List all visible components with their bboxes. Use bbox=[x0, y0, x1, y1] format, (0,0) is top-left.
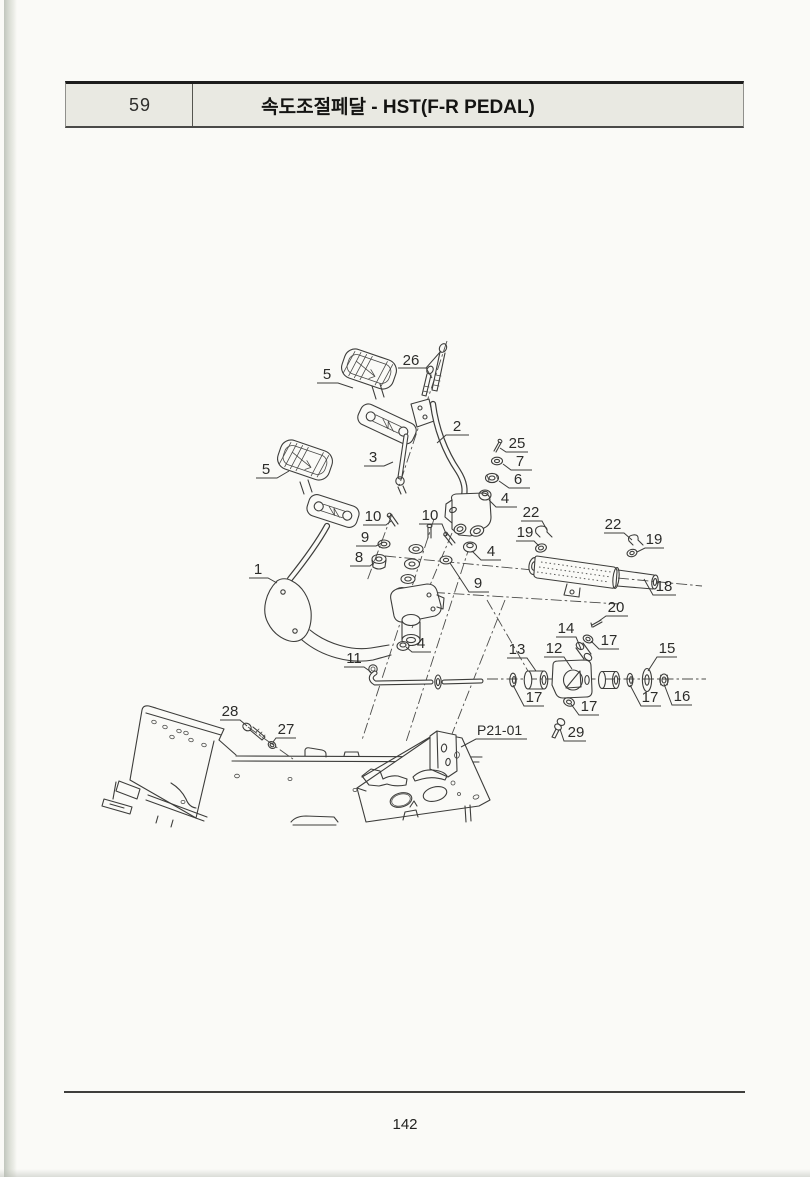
callout-4-a: 4 bbox=[501, 490, 509, 507]
footer-rule bbox=[64, 1091, 745, 1093]
callout-19-a: 19 bbox=[517, 524, 534, 541]
pedal-pad-lower bbox=[275, 437, 336, 483]
control-rod-2 bbox=[411, 399, 465, 499]
manual-page: 59 속도조절페달 - HST(F-R PEDAL) bbox=[0, 0, 810, 1177]
bushing-4-bottom bbox=[397, 642, 409, 651]
pedal-plate-lower bbox=[305, 493, 361, 530]
callout-11: 11 bbox=[346, 650, 362, 667]
callout-25: 25 bbox=[509, 435, 526, 452]
callout-2: 2 bbox=[453, 418, 461, 435]
center-axis-lines bbox=[248, 341, 706, 759]
pad-lower-stem bbox=[300, 480, 312, 494]
callout-17-c: 17 bbox=[642, 689, 659, 706]
callout-18: 18 bbox=[656, 578, 673, 595]
joint-12 bbox=[552, 660, 592, 698]
callout-17-b: 17 bbox=[526, 689, 543, 706]
cotter-pin-25 bbox=[494, 439, 502, 452]
callout-17-d: 17 bbox=[581, 698, 598, 715]
washer-stack bbox=[401, 545, 423, 584]
callout-16: 16 bbox=[674, 688, 691, 705]
callout-4-b: 4 bbox=[487, 543, 495, 560]
callout-9-b: 9 bbox=[474, 575, 482, 592]
callout-9-a: 9 bbox=[361, 529, 369, 546]
lock-washer-6 bbox=[486, 473, 499, 482]
callout-26: 26 bbox=[403, 352, 420, 369]
callout-29: 29 bbox=[568, 724, 585, 741]
washer-9-right bbox=[440, 556, 452, 564]
callout-5-upper: 5 bbox=[323, 366, 331, 383]
pedal-pad-upper bbox=[339, 346, 400, 392]
bolt-29 bbox=[552, 717, 566, 738]
pedal-plate-3 bbox=[355, 401, 419, 446]
washer-7 bbox=[492, 457, 503, 465]
callout-20: 20 bbox=[608, 599, 625, 616]
callout-1: 1 bbox=[254, 561, 262, 578]
cap-8 bbox=[372, 555, 386, 570]
bushing-4-mid bbox=[464, 542, 477, 552]
callout-5-lower: 5 bbox=[262, 461, 270, 478]
callout-13: 13 bbox=[509, 641, 526, 658]
callout-22-b: 22 bbox=[605, 516, 622, 533]
bolt-26-long bbox=[432, 342, 448, 391]
callout-15: 15 bbox=[659, 640, 676, 657]
callout-3: 3 bbox=[369, 449, 377, 466]
pin-20 bbox=[591, 620, 602, 627]
washer-19-left bbox=[535, 543, 548, 554]
bolt-26-short bbox=[422, 365, 435, 396]
damper-18 bbox=[528, 556, 659, 597]
callout-28: 28 bbox=[222, 703, 239, 720]
clip-22-left bbox=[536, 526, 552, 537]
washer-17-right bbox=[627, 673, 633, 686]
frame-right bbox=[291, 731, 490, 825]
washer-19-right bbox=[626, 548, 638, 558]
callout-19-b: 19 bbox=[646, 531, 663, 548]
callout-22-a: 22 bbox=[523, 504, 540, 521]
exploded-parts-diagram: 26 5 2 3 25 7 6 4 5 10 9 8 10 22 19 22 1… bbox=[0, 0, 810, 1177]
callout-27: 27 bbox=[278, 721, 295, 738]
callout-6: 6 bbox=[514, 471, 522, 488]
scan-bottom-shading bbox=[0, 1169, 810, 1177]
callout-8: 8 bbox=[355, 549, 363, 566]
callout-10-b: 10 bbox=[422, 507, 439, 524]
callout-4-c: 4 bbox=[417, 635, 425, 652]
pedal-arm-3 bbox=[396, 436, 406, 494]
bushing-right bbox=[599, 672, 620, 689]
callout-17-a: 17 bbox=[601, 632, 618, 649]
page-number: 142 bbox=[0, 1116, 810, 1133]
clip-22-right bbox=[629, 535, 644, 545]
pin-14 bbox=[575, 641, 593, 662]
callout-leader-lines bbox=[220, 351, 692, 747]
callout-10-a: 10 bbox=[365, 508, 382, 525]
callout-12: 12 bbox=[546, 640, 563, 657]
callout-figure-ref: P21-01 bbox=[477, 722, 522, 738]
spring-pin-10-right bbox=[443, 532, 455, 545]
callout-7: 7 bbox=[516, 453, 524, 470]
bushing-13 bbox=[524, 671, 548, 689]
callout-14: 14 bbox=[558, 620, 575, 637]
